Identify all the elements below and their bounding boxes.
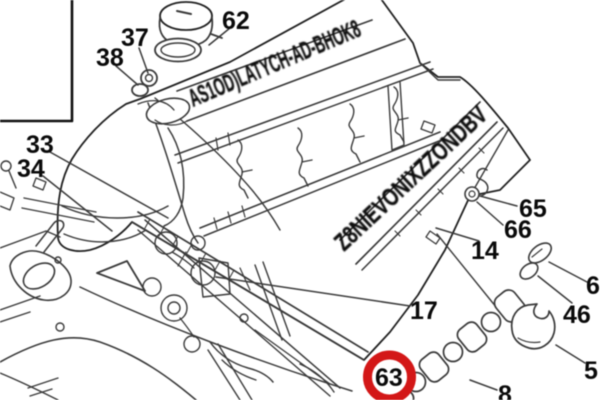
svg-text:34: 34 <box>17 155 45 183</box>
svg-text:66: 66 <box>504 216 532 244</box>
svg-text:8: 8 <box>498 381 512 400</box>
svg-text:62: 62 <box>222 7 250 35</box>
svg-text:46: 46 <box>563 301 591 329</box>
svg-text:63: 63 <box>375 364 403 392</box>
svg-text:14: 14 <box>471 237 499 265</box>
svg-text:38: 38 <box>96 44 124 72</box>
svg-text:6: 6 <box>586 272 600 300</box>
svg-text:5: 5 <box>584 357 598 385</box>
svg-text:17: 17 <box>410 297 438 325</box>
svg-text:37: 37 <box>121 24 149 52</box>
